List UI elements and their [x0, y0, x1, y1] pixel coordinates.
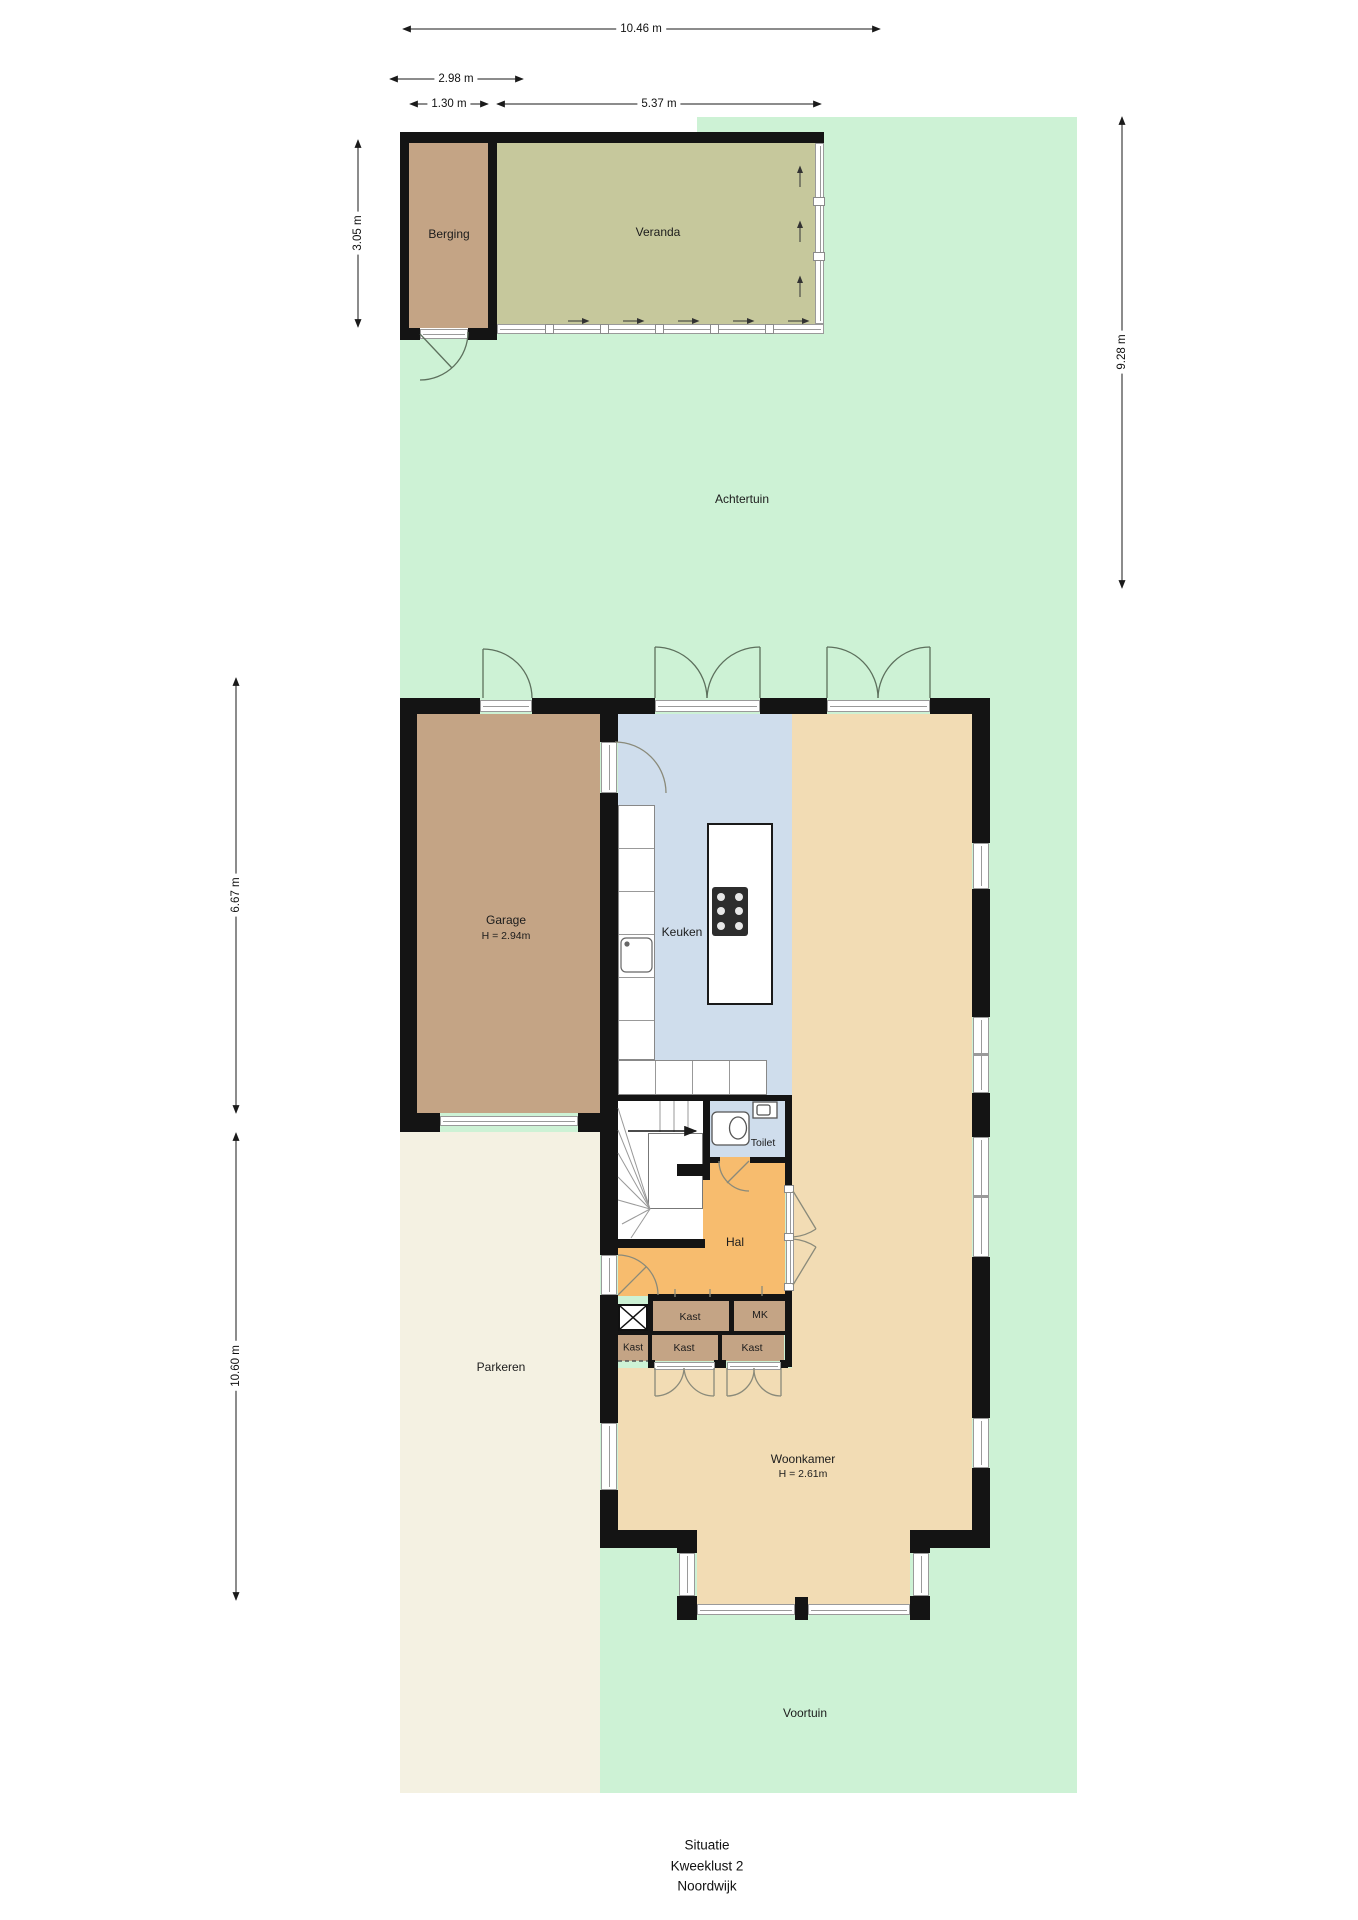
- east-window: [973, 1418, 989, 1468]
- room-label-woonkamer: Woonkamer: [771, 1452, 835, 1466]
- garage-keuken-door-opening: [601, 742, 617, 793]
- room-label-parkeren: Parkeren: [477, 1360, 526, 1374]
- berging-south-wall-right: [468, 328, 497, 340]
- toilet-south-wall: [710, 1157, 720, 1163]
- woonkamer-doors-threshold: [827, 700, 930, 712]
- plan-title-line3: Noordwijk: [677, 1879, 736, 1894]
- hal-east-wall: [785, 1100, 792, 1187]
- house-east-wall: [972, 889, 990, 1017]
- room-label-voortuin: Voortuin: [783, 1706, 827, 1720]
- central-wall: [600, 1295, 618, 1423]
- bay-corner-right: [910, 1596, 930, 1620]
- veranda-south-mullion: [655, 324, 664, 334]
- veranda-east-mullion: [813, 252, 825, 261]
- floor-plan-situatie: Berging Veranda Achtertuin Garage H = 2.…: [0, 0, 1358, 1920]
- house-north-wall: [760, 698, 827, 714]
- berging-door-threshold: [420, 329, 468, 339]
- veranda-south-mullion: [600, 324, 609, 334]
- veranda-south-mullion: [765, 324, 774, 334]
- window-bar: [973, 1195, 989, 1198]
- room-label-achtertuin: Achtertuin: [715, 492, 769, 506]
- west-window: [601, 1423, 617, 1490]
- shaft-box: [618, 1304, 648, 1331]
- room-label-hal: Hal: [726, 1235, 744, 1249]
- door-jamb: [784, 1283, 794, 1291]
- kitchen-island: [707, 823, 773, 1005]
- stairs-toilet-divider: [703, 1100, 710, 1180]
- central-wall: [600, 714, 618, 742]
- dim-front-depth: 10.60 m: [230, 1341, 242, 1391]
- kast-divider: [648, 1335, 652, 1363]
- toilet-south-wall: [750, 1157, 785, 1163]
- kitchen-counter-south: [618, 1060, 767, 1095]
- kast-mid-wall: [618, 1331, 788, 1335]
- kast-divider: [718, 1335, 722, 1363]
- dim-berging-width: 1.30 m: [427, 98, 470, 110]
- room-label-kast: Kast: [623, 1343, 643, 1354]
- kast-bottom-wall: [780, 1360, 788, 1368]
- room-label-veranda: Veranda: [636, 225, 681, 239]
- bay-step-wall-right: [910, 1530, 990, 1548]
- central-wall: [600, 793, 618, 1255]
- dim-outbuilding-width: 2.98 m: [434, 73, 477, 85]
- kast-door-sill: [727, 1362, 781, 1370]
- stairs-south-wall: [617, 1239, 705, 1248]
- berging-south-wall-left: [400, 328, 420, 340]
- door-jamb: [784, 1233, 794, 1241]
- bay-mullion: [795, 1597, 808, 1620]
- room-label-kast: Kast: [741, 1342, 762, 1354]
- garage-vehicle-door-sill: [440, 1116, 578, 1126]
- house-north-wall: [532, 698, 655, 714]
- bay-side-window-left: [679, 1553, 695, 1596]
- door-jamb: [784, 1185, 794, 1193]
- plan-title-line1: Situatie: [684, 1838, 729, 1853]
- berging-veranda-divider-wall: [488, 143, 497, 328]
- plan-title-line2: Kweeklust 2: [671, 1859, 744, 1874]
- room-label-kast: Kast: [673, 1342, 694, 1354]
- room-label-kast: Kast: [679, 1311, 700, 1323]
- room-label-garage: Garage: [486, 913, 526, 927]
- house-east-wall: [972, 1257, 990, 1418]
- garage-west-wall: [400, 698, 417, 1132]
- keuken-doors-threshold: [655, 700, 760, 712]
- bay-corner-left: [677, 1596, 697, 1620]
- kast-door-sill: [654, 1362, 715, 1370]
- kast-divider: [729, 1300, 734, 1333]
- bay-front-window: [697, 1604, 795, 1615]
- room-label-keuken: Keuken: [662, 925, 703, 939]
- woonkamer-floor-east: [792, 714, 972, 1368]
- garage-north-door-threshold: [480, 700, 532, 712]
- outbuilding-west-wall: [400, 132, 409, 340]
- veranda-south-mullion: [710, 324, 719, 334]
- veranda-east-mullion: [813, 197, 825, 206]
- bay-front-window: [808, 1604, 910, 1615]
- dim-garden-width: 10.46 m: [616, 23, 666, 35]
- dim-garage-depth: 6.67 m: [230, 873, 242, 916]
- room-label-garage-height: H = 2.94m: [482, 930, 531, 942]
- kitchen-counter-west: [618, 805, 655, 1060]
- stairs-stub-wall: [677, 1164, 703, 1176]
- east-window: [973, 843, 989, 889]
- room-label-toilet: Toilet: [751, 1137, 776, 1149]
- bay-side-window-right: [913, 1553, 929, 1596]
- house-east-wall: [972, 698, 990, 843]
- bay-step-wall-left: [600, 1530, 697, 1548]
- outbuilding-north-wall: [400, 132, 824, 143]
- veranda-east-glazing: [815, 143, 824, 324]
- kast-divider: [648, 1300, 653, 1333]
- kast-bottom-wall: [714, 1360, 726, 1368]
- veranda-south-mullion: [545, 324, 554, 334]
- house-east-wall: [972, 1093, 990, 1137]
- dim-berging-depth: 3.05 m: [352, 211, 364, 254]
- kast-top-wall: [648, 1294, 788, 1301]
- dim-garden-depth: 9.28 m: [1116, 330, 1128, 373]
- room-label-berging: Berging: [428, 227, 469, 241]
- garage-south-wall: [400, 1113, 440, 1132]
- parkeren-area: [400, 1132, 600, 1793]
- front-door-opening: [601, 1255, 617, 1295]
- room-label-woonkamer-height: H = 2.61m: [779, 1468, 828, 1480]
- room-label-mk: MK: [752, 1309, 768, 1321]
- dim-veranda-width: 5.37 m: [637, 98, 680, 110]
- window-bar: [973, 1053, 989, 1056]
